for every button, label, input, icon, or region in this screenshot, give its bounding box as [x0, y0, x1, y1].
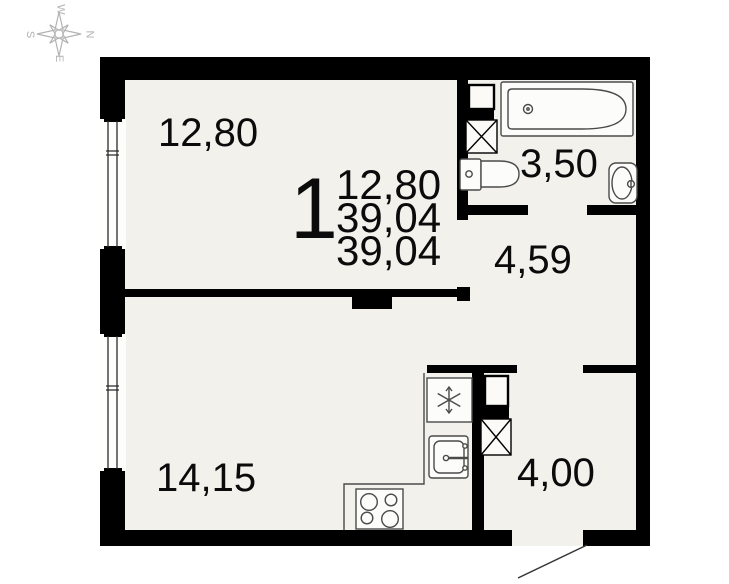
window-living	[100, 119, 126, 249]
bathtub-icon	[501, 82, 633, 136]
wall-middle-pier	[352, 297, 392, 309]
shaft-box-icon	[485, 376, 508, 406]
room-label-kitchen-living: 14,15	[156, 458, 256, 498]
room-label-bathroom: 3,50	[520, 144, 598, 184]
shaft-divider	[466, 109, 494, 120]
window-opening	[100, 119, 126, 249]
vent-shaft-bathroom	[466, 85, 497, 153]
wall-bathroom-bottom-right	[587, 205, 636, 215]
room-label-living: 12,80	[158, 113, 258, 153]
compass-rose-icon	[37, 12, 81, 56]
window-opening	[100, 334, 126, 471]
wall-middle-endcap	[457, 287, 470, 301]
shaft-divider	[482, 406, 509, 419]
compass-south-label: S	[24, 31, 35, 38]
wall-hall-bottom-right	[583, 365, 636, 373]
wall-left-pier-bottom	[100, 471, 125, 546]
entrance-door-icon	[518, 545, 587, 578]
window-cap	[104, 246, 122, 249]
kitchen-sink-icon	[429, 436, 468, 478]
wall-right	[636, 57, 650, 546]
window-cap	[104, 468, 122, 471]
compass-east-label: E	[53, 55, 64, 62]
window-cap	[104, 334, 122, 337]
wall-left-pier-top	[100, 57, 125, 119]
window-kitchen	[100, 334, 126, 471]
bathroom-sink-icon	[609, 163, 637, 203]
wall-bottom-right	[583, 530, 650, 546]
compass-north-label: N	[83, 31, 94, 39]
fridge-icon	[427, 378, 472, 422]
floor-plan-drawing	[0, 0, 729, 584]
apartment-number: 1	[290, 166, 338, 252]
wall-middle	[118, 289, 470, 297]
shaft-box-icon	[469, 85, 494, 109]
toilet-icon	[460, 159, 519, 190]
room-label-hallway: 4,59	[494, 240, 572, 280]
stove-icon	[356, 489, 403, 529]
wall-bottom-left	[100, 530, 512, 546]
compass-west-label: W	[55, 4, 66, 14]
vent-shaft-entrance	[481, 376, 511, 455]
wall-bathroom-bottom-left	[467, 205, 528, 215]
window-cap	[104, 119, 122, 122]
wall-top	[100, 57, 650, 80]
stat-total-area-with-balcony: 39,04	[336, 230, 441, 272]
room-label-entrance-hall: 4,00	[517, 453, 595, 493]
wall-kitchen-top	[427, 365, 517, 373]
floor-plan-page: W N E S 12,80 3,50 4,59 14,15 4,00 1 12,…	[0, 0, 729, 584]
